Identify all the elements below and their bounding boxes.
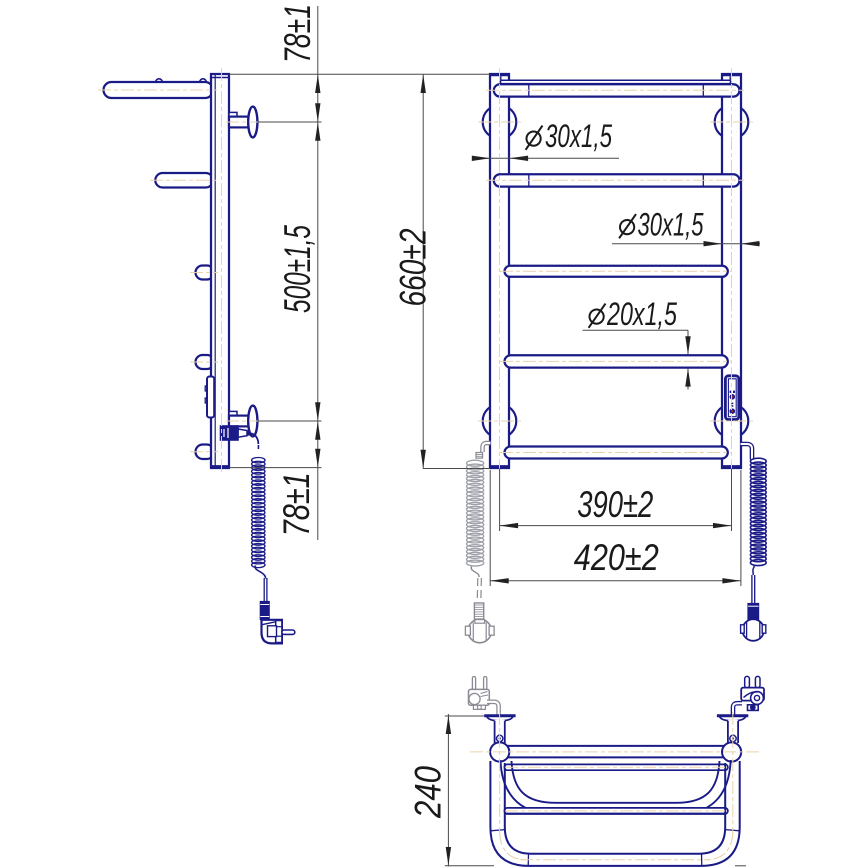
svg-text:500±1,5: 500±1,5	[277, 225, 318, 313]
svg-text:30x1,5: 30x1,5	[638, 207, 704, 243]
svg-text:240: 240	[408, 766, 449, 819]
svg-text:20x1,5: 20x1,5	[606, 296, 677, 332]
svg-text:420±2: 420±2	[574, 537, 659, 578]
svg-text:78±1: 78±1	[277, 4, 318, 63]
svg-text:660±2: 660±2	[393, 228, 434, 306]
svg-text:30x1,5: 30x1,5	[545, 118, 612, 154]
svg-text:78±1: 78±1	[276, 472, 317, 536]
svg-text:390±2: 390±2	[577, 484, 653, 525]
